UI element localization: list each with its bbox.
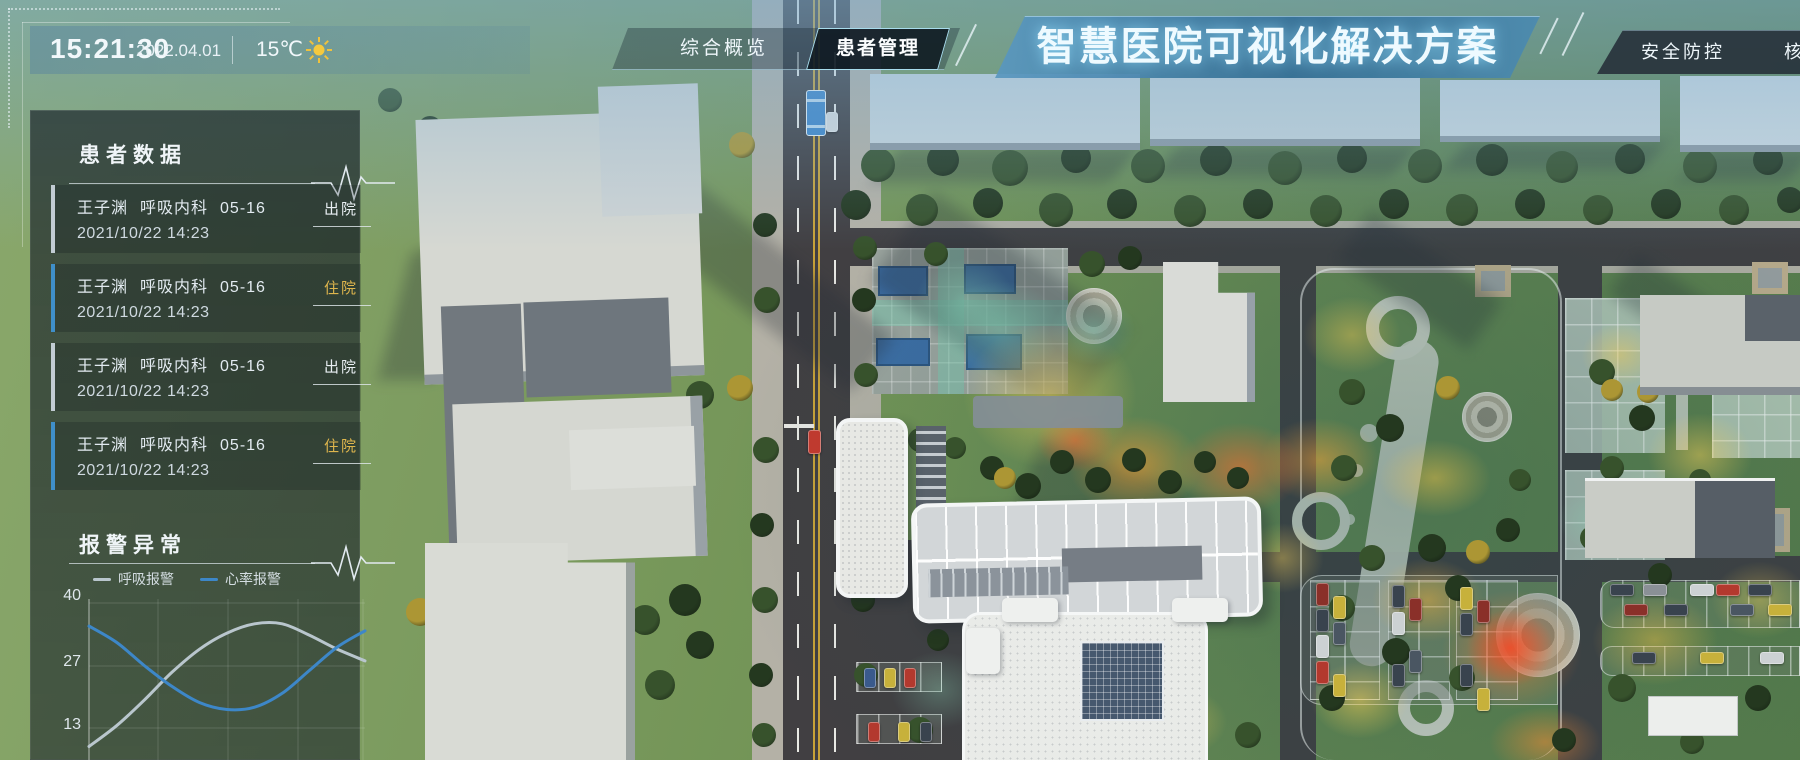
patient-department: 呼吸内科 <box>140 279 208 296</box>
legend-heart-alarm[interactable]: 心率报警 <box>200 569 281 589</box>
tab-truncated[interactable]: 核 <box>1784 30 1800 74</box>
patient-list-item[interactable]: 王子渊呼吸内科05-16 2021/10/22 14:23 住院 <box>51 422 361 490</box>
tab-security[interactable]: 安全防控 <box>1627 30 1739 74</box>
fountain <box>1462 392 1512 442</box>
patient-datetime: 2021/10/22 14:23 <box>77 383 210 401</box>
legend-swatch <box>200 578 218 581</box>
y-axis-tick: 13 <box>45 716 81 734</box>
tab-patient-management[interactable]: 患者管理 <box>806 28 950 70</box>
building <box>523 297 671 397</box>
status-badge: 住院 <box>317 435 365 456</box>
building <box>870 74 1140 150</box>
patient-name: 王子渊 <box>77 437 128 454</box>
covered-walkway <box>973 396 1123 428</box>
patient-name: 王子渊 <box>77 279 128 296</box>
building <box>1150 78 1420 146</box>
patient-datetime: 2021/10/22 14:23 <box>77 462 210 480</box>
patient-department: 呼吸内科 <box>140 200 208 217</box>
legend-swatch <box>93 578 111 581</box>
tab-overview[interactable]: 综合概览 <box>662 28 786 70</box>
patient-datetime: 2021/10/22 14:23 <box>77 304 210 322</box>
section-underline <box>69 563 315 564</box>
patient-bed: 05-16 <box>220 437 266 454</box>
skylight-grid <box>1080 641 1164 721</box>
dashboard: 15:21:30 2022.04.01 15℃ 综合概览 患者管理 <box>0 0 1800 760</box>
status-badge: 出院 <box>317 356 365 377</box>
alarm-section-title: 报警异常 <box>79 529 187 559</box>
heart-alarm-line <box>89 626 365 710</box>
hospital-annex-highlight[interactable] <box>836 418 908 598</box>
building <box>569 426 696 490</box>
building <box>1680 76 1800 152</box>
building <box>1440 80 1660 142</box>
patient-list-item[interactable]: 王子渊呼吸内科05-16 2021/10/22 14:23 出院 <box>51 343 361 411</box>
y-axis-tick: 27 <box>45 653 81 671</box>
patient-list-item[interactable]: 王子渊呼吸内科05-16 2021/10/22 14:23 出院 <box>51 185 361 253</box>
y-axis-tick: 40 <box>45 587 81 605</box>
chart-legend: 呼吸报警 心率报警 <box>93 569 281 589</box>
building <box>425 543 635 760</box>
building <box>1648 696 1738 736</box>
left-data-panel: 患者数据 王子渊呼吸内科05-16 2021/10/22 14:23 出院 王子… <box>30 110 360 760</box>
status-badge: 住院 <box>317 277 365 298</box>
patient-list-item[interactable]: 王子渊呼吸内科05-16 2021/10/22 14:23 住院 <box>51 264 361 332</box>
patient-department: 呼吸内科 <box>140 358 208 375</box>
patient-bed: 05-16 <box>220 279 266 296</box>
patient-bed: 05-16 <box>220 200 266 217</box>
legend-resp-alarm[interactable]: 呼吸报警 <box>93 569 174 589</box>
section-underline <box>69 183 315 184</box>
patient-name: 王子渊 <box>77 200 128 217</box>
bus <box>806 90 826 136</box>
building <box>1585 478 1775 558</box>
building <box>598 83 702 216</box>
patient-data-title: 患者数据 <box>79 139 187 169</box>
patient-department: 呼吸内科 <box>140 437 208 454</box>
building <box>1745 295 1800 341</box>
patient-datetime: 2021/10/22 14:23 <box>77 225 210 243</box>
status-badge: 出院 <box>317 198 365 219</box>
pulse-icon <box>311 543 395 583</box>
stop-line <box>784 424 814 428</box>
patient-name: 王子渊 <box>77 358 128 375</box>
alarm-line-chart[interactable] <box>87 589 365 760</box>
patient-bed: 05-16 <box>220 358 266 375</box>
